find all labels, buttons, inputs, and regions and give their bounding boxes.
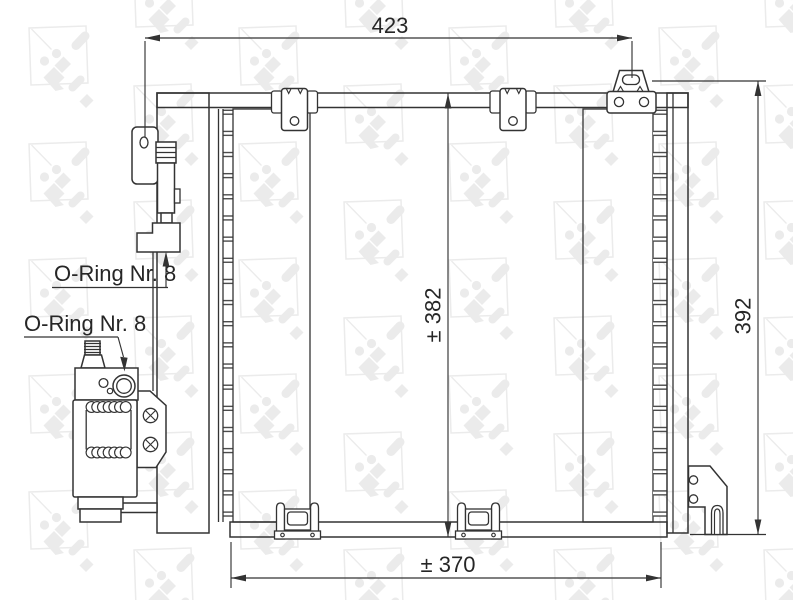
mount-slot-hole xyxy=(623,75,640,85)
valve-step xyxy=(78,497,123,509)
bracket-hole xyxy=(689,476,697,484)
dim-label-height-total: 392 xyxy=(731,298,756,335)
valve-neck xyxy=(161,213,172,223)
side-bracket-hole xyxy=(140,137,148,148)
oring-label-lower: O-Ring Nr. 8 xyxy=(24,311,146,336)
mount-hole xyxy=(614,97,623,106)
spring-row-bottom xyxy=(86,447,131,458)
dim-label-width-bottom: ± 370 xyxy=(421,552,476,577)
spring-row-top xyxy=(86,402,131,413)
small-port xyxy=(99,379,108,388)
dim-label-height-core: ± 382 xyxy=(421,288,446,343)
valve-base xyxy=(80,509,121,522)
dim-label-width-top: 423 xyxy=(372,13,409,38)
bracket-slot xyxy=(712,506,724,535)
bracket-hole xyxy=(509,117,518,126)
bracket-hole xyxy=(290,117,299,126)
oring-label-upper: O-Ring Nr. 8 xyxy=(54,261,176,286)
valve-body xyxy=(158,163,175,213)
technical-drawing-page: 423 ± 382 392 ± 370 O xyxy=(0,0,793,600)
condenser-drawing-canvas: 423 ± 382 392 ± 370 O xyxy=(0,0,793,600)
mount-hole xyxy=(639,97,648,106)
clip-window xyxy=(288,512,308,525)
valve-bracket xyxy=(137,391,166,468)
service-port-hex xyxy=(81,355,105,368)
valve-tab xyxy=(175,189,181,203)
tube-stubs-left xyxy=(223,109,233,522)
tube-stubs-right xyxy=(653,109,667,522)
clip-window xyxy=(469,512,489,525)
bottom-mount-clip-right xyxy=(456,503,502,539)
screw xyxy=(143,437,157,451)
screw xyxy=(143,408,157,422)
bottom-mount-clip-left xyxy=(275,503,321,539)
bracket-hole xyxy=(689,495,697,503)
